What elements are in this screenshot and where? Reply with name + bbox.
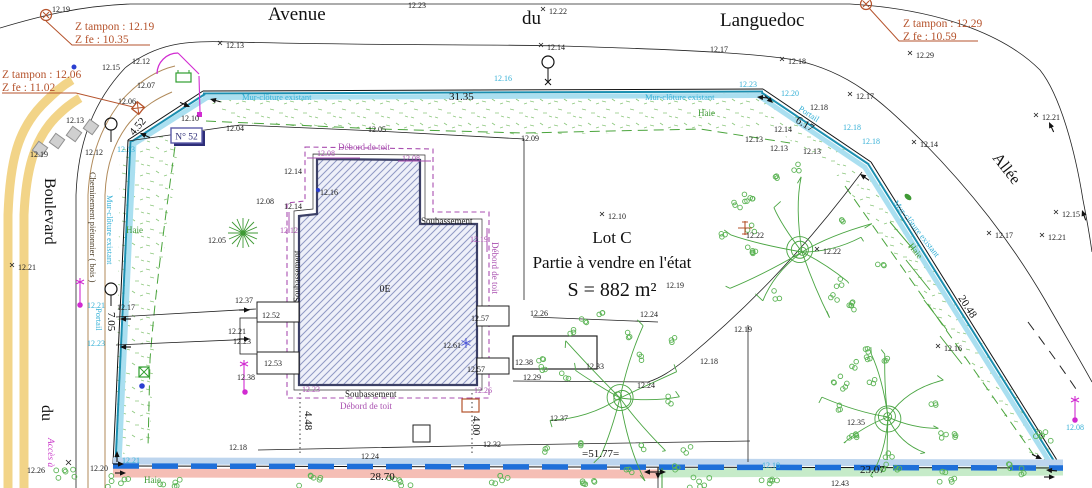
elevation-point: 12.13 (745, 135, 763, 144)
elevation-point: 12.52 (262, 311, 280, 320)
elevation-point: 12.18 (862, 137, 880, 146)
elevation-point: 12.12 (280, 226, 298, 235)
point-cross (600, 212, 604, 216)
point-cross (1034, 113, 1038, 117)
elevation-point: 12.22 (549, 7, 567, 16)
elevation-point: 12.12 (85, 148, 103, 157)
elevation-point: 12.33 (586, 362, 604, 371)
soubassement-label: Soubassement (345, 389, 397, 399)
elevation-point: 12.15 (102, 63, 120, 72)
street-allee: Allée (989, 150, 1024, 188)
mast-magenta-icon (1071, 396, 1079, 422)
roof-overhang-label: Débord de toit (338, 142, 390, 152)
elevation-point: 12.13 (226, 41, 244, 50)
elevation-point: 12.18 (229, 443, 247, 452)
house-number-box: N° 52 (171, 128, 205, 146)
elevation-point: 12.43 (831, 479, 849, 488)
elevation-point: 12.19 (30, 150, 48, 159)
lot-desc: Partie à vendre en l'état (533, 253, 692, 272)
elevation-point: 12.08 (1066, 423, 1084, 432)
elevation-point: 12.21 (228, 327, 246, 336)
z-annotation-3: Z tampon : 12.29 Z fe : 10.59 (869, 8, 982, 43)
point-cross (987, 231, 991, 235)
elevation-point: 12.18 (788, 57, 806, 66)
walkway-label: Cheminement piétonnier ( bois ) (88, 172, 98, 283)
elevation-point: 12.10 (181, 114, 199, 123)
elevation-point: 12.14 (920, 140, 938, 149)
plant-starburst-icon (228, 218, 258, 248)
elevation-point: 12.61 (443, 341, 461, 350)
elevation-point: 12.22 (746, 231, 764, 240)
elevation-point: 12.22 (823, 247, 841, 256)
step-box (240, 318, 257, 354)
band-lightblue (113, 461, 1063, 463)
elevation-point: 12.14 (547, 43, 565, 52)
elevation-point: 12.14 (284, 202, 302, 211)
elevation-point: 12.57 (467, 365, 485, 374)
paver (83, 119, 98, 134)
gate-label: Portail (94, 308, 104, 331)
elevation-point: 12.26 (530, 309, 548, 318)
arrow-icon (1047, 121, 1056, 133)
dimension-label: 4.00 (470, 416, 482, 436)
dimension-label: 7.05 (105, 312, 117, 332)
elevation-point: 12.29 (916, 51, 934, 60)
elevation-point: 12.17 (710, 45, 728, 54)
tree (819, 346, 958, 477)
elevation-point: 12.21 (1048, 233, 1066, 242)
elevation-point: 12.21 (1042, 113, 1060, 122)
point-cross (908, 51, 912, 55)
elevation-point: 12.23 (739, 80, 757, 89)
elevation-point: 12.21 (18, 263, 36, 272)
bush (759, 477, 779, 486)
elevation-point: 12.26 (27, 466, 45, 475)
lot-name: Lot C (592, 228, 631, 247)
elevation-point: 12.07 (137, 81, 155, 90)
dimension-label: =51.77= (582, 448, 619, 460)
valve-blue-icon (139, 383, 145, 389)
elevation-point: 12.38 (237, 373, 255, 382)
z-tampon-text: Z tampon : 12.29 (903, 18, 982, 30)
access-label: Accès à (45, 437, 55, 468)
wall-label: Mur-clôture existant (242, 92, 312, 102)
z-annotation-1: Z tampon : 12.19 Z fe : 10.35 (46, 21, 154, 46)
leaf-icon (903, 193, 912, 202)
elevation-point: 12.16 (320, 188, 338, 197)
house-number: N° 52 (175, 132, 198, 143)
dimension-label: 23.07 (860, 464, 885, 476)
roof-overhang-label: Débord de toit (340, 401, 392, 411)
elevation-point: 12.13 (66, 116, 84, 125)
elevation-point: 12.37 (235, 296, 253, 305)
point-cross (848, 92, 852, 96)
lot-area: S = 882 m² (568, 279, 657, 301)
elevation-point: 12.20 (781, 89, 799, 98)
survey-lines (116, 125, 862, 462)
elevation-point: 12.14 (774, 125, 792, 134)
lamppost-icon (542, 56, 554, 85)
roof-overhang-label: Débord de toit (490, 242, 500, 294)
dimension-label: 31.35 (449, 91, 474, 103)
elevation-point: 12.13 (117, 145, 135, 154)
street-avenue: Avenue (268, 4, 326, 25)
soubassement-label: Soubassement (292, 250, 302, 302)
utility-green-icon (176, 70, 191, 82)
elevation-point: 12.05 (208, 236, 226, 245)
elevation-point: 12.10 (608, 212, 626, 221)
point-cross (541, 7, 545, 11)
elevation-point: 12.38 (515, 358, 533, 367)
elevation-point: 12.09 (521, 134, 539, 143)
elevation-point: 12.23 (233, 337, 251, 346)
road-centerline (1028, 322, 1078, 392)
elevation-point: 12.24 (640, 310, 658, 319)
elevation-point: 12.17 (995, 231, 1013, 240)
elevation-point: 12.24 (361, 452, 379, 461)
elevation-point: 12.16 (944, 344, 962, 353)
point-cross (539, 43, 543, 47)
point-cross (780, 57, 784, 61)
elevation-point: 12.19 (666, 281, 684, 290)
bush (580, 478, 597, 486)
elevation-point: 12.12 (132, 57, 150, 66)
elevation-point: 12.13 (803, 147, 821, 156)
point-cross (1054, 210, 1058, 214)
street-boulevard: Boulevard (41, 178, 58, 245)
point-cross (815, 247, 819, 251)
elevation-point: 12.05 (368, 125, 386, 134)
mast-magenta-icon (76, 278, 84, 307)
elevation-point: 12.13 (770, 144, 788, 153)
bush (54, 467, 77, 480)
utility-red-box (462, 399, 479, 412)
elevation-point: 12.06 (118, 97, 136, 106)
elevation-point: 12.08 (256, 197, 274, 206)
elevation-point: 12.37 (550, 414, 568, 423)
z-tampon-text: Z tampon : 12.19 (75, 21, 154, 33)
elevation-point: 12.14 (284, 167, 302, 176)
elevation-point: 12.57 (471, 314, 489, 323)
survey-plan-stage: 12.1912.2312.2212.1312.1412.1812.1712.29… (0, 0, 1092, 488)
wall-label: Mur-clôture existant (645, 92, 715, 102)
elevation-point: 12.20 (90, 464, 108, 473)
hedge-layer (116, 93, 1058, 462)
elevation-point: 12.32 (483, 440, 501, 449)
hedge-label: Haie (144, 475, 161, 485)
lamppost-icon (105, 283, 117, 306)
elevation-point: 12.18 (700, 357, 718, 366)
hedge-label: Haie (698, 108, 715, 118)
building-floor-label: 0E (379, 284, 390, 295)
bush (158, 477, 182, 488)
survey-plan: 12.1912.2312.2212.1312.1412.1812.1712.29… (0, 0, 1092, 488)
elevation-point: 12.24 (637, 381, 655, 390)
street-boulevard-du: du (38, 405, 55, 421)
arrow-icon (239, 307, 250, 312)
elevation-point: 12.35 (847, 418, 865, 427)
small-square-structure (413, 425, 430, 442)
paver (49, 133, 64, 148)
z-fe-text: Z fe : 10.59 (903, 31, 957, 43)
survey-cross (66, 460, 71, 465)
elevation-point: 12.08 (317, 149, 335, 158)
z-fe-text: Z fe : 10.35 (75, 34, 129, 46)
dimension-label: 4.48 (302, 411, 314, 431)
elevation-point: 12.15 (1062, 210, 1080, 219)
elevation-point: 12.21 (122, 456, 140, 465)
elevation-point: 12.04 (226, 124, 244, 133)
hedge-label: Haie (126, 225, 143, 235)
soubassement-label: Soubassement (421, 216, 473, 226)
elevation-point: 12.19 (734, 325, 752, 334)
elevation-point: 12.17 (117, 303, 135, 312)
elevation-point: 12.19 (52, 5, 70, 14)
elevation-point: 12.16 (494, 74, 512, 83)
street-avenue-du: du (522, 8, 542, 29)
elevation-point: 12.29 (523, 373, 541, 382)
paver (66, 126, 81, 141)
lamppost-icon (105, 118, 117, 142)
elevation-point: 12.18 (762, 461, 780, 470)
z-fe-text: Z fe : 11.02 (2, 82, 55, 94)
elevation-point: 12.23 (302, 385, 320, 394)
street-languedoc: Languedoc (720, 10, 804, 31)
point-cross (936, 344, 940, 348)
elevation-point: 12.17 (856, 92, 874, 101)
elevation-point: 12.18 (843, 123, 861, 132)
elevation-point: 12.19 (470, 235, 488, 244)
elevation-point: 12.23 (87, 339, 105, 348)
dimension-label: 28.70 (370, 471, 395, 483)
point-cross (912, 140, 916, 144)
wall-label: Mur-clôture existant (105, 195, 115, 265)
z-tampon-text: Z tampon : 12.06 (2, 69, 81, 81)
elevation-point: 12.23 (408, 1, 426, 10)
elevation-point: 12.53 (264, 359, 282, 368)
elevation-point: 12.08 (402, 154, 420, 163)
point-cross (1040, 233, 1044, 237)
elevation-point: 12.26 (474, 386, 492, 395)
